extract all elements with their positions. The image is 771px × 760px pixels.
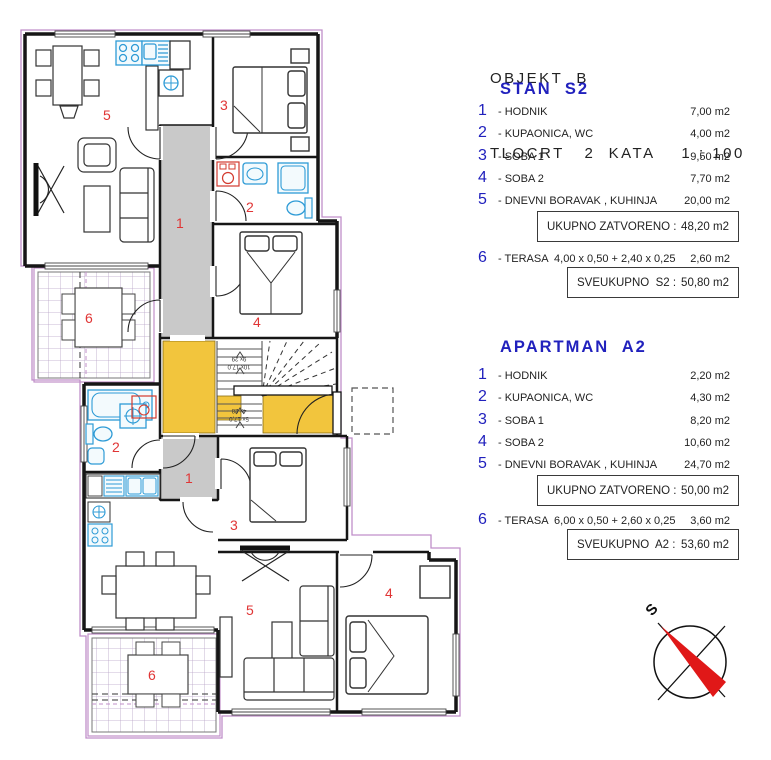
room-name: - SOBA 1	[498, 415, 544, 427]
subtotal-box-a2: UKUPNO ZATVORENO : 50,00 m2	[537, 475, 739, 506]
room-number: 5	[470, 455, 495, 473]
room-area: 8,20 m2	[690, 415, 730, 427]
room-name: - SOBA 2	[498, 437, 544, 449]
room-area: 2,60 m2	[690, 253, 730, 265]
room-number: 4	[470, 169, 495, 187]
room-number: 2	[470, 388, 495, 406]
room-name: - HODNIK	[498, 370, 548, 382]
area-rows-a2: 1 - HODNIK 2,20 m2 2 - KUPAONICA, WC 4,3…	[470, 366, 771, 477]
corridor-fill	[160, 125, 218, 500]
room-name: - TERASA 6,00 x 0,50 + 2,60 x 0,25	[498, 515, 675, 527]
room-name: - KUPAONICA, WC	[498, 392, 593, 404]
subtotal-value: 50,00 m2	[681, 485, 729, 497]
room-number: 3	[470, 411, 495, 429]
total-value: 50,80 m2	[681, 277, 729, 289]
area-rows-s2: 1 - HODNIK 7,00 m2 2 - KUPAONICA, WC 4,0…	[470, 102, 771, 213]
a2-bath-fixtures	[86, 390, 156, 464]
terrace-row-a2: 6 - TERASA 6,00 x 0,50 + 2,60 x 0,25 3,6…	[470, 511, 771, 529]
room-number: 2	[470, 124, 495, 142]
room-area: 3,60 m2	[690, 515, 730, 527]
room-label-a2-living: 5	[246, 602, 254, 618]
room-label-a2-bath: 2	[112, 439, 120, 455]
subtotal-label: UKUPNO ZATVORENO :	[547, 221, 677, 233]
area-row: 4 - SOBA 2 10,60 m2	[470, 433, 771, 455]
subtotal-box-s2: UKUPNO ZATVORENO : 48,20 m2	[537, 211, 739, 242]
svg-text:5x 17,0: 5x 17,0	[228, 415, 248, 421]
room-label-a2-hall: 1	[185, 470, 193, 486]
s2-bed-soba2	[240, 232, 302, 314]
terrace-row-s2: 6 - TERASA 4,00 x 0,50 + 2,40 x 0,25 2,6…	[470, 249, 771, 267]
total-box-s2: SVEUKUPNO S2 : 50,80 m2	[567, 267, 739, 298]
room-label-s2-bath: 2	[246, 199, 254, 215]
section-title-s2: STAN S2	[500, 80, 589, 99]
room-number: 4	[470, 433, 495, 451]
subtotal-label: UKUPNO ZATVORENO :	[547, 485, 677, 497]
room-name: - SOBA 1	[498, 151, 544, 163]
area-row: 2 - KUPAONICA, WC 4,00 m2	[470, 124, 771, 146]
area-row: 4 - SOBA 2 7,70 m2	[470, 169, 771, 191]
area-row: 3 - SOBA 1 9,50 m2	[470, 147, 771, 169]
area-row: 2 - KUPAONICA, WC 4,30 m2	[470, 388, 771, 410]
terrace-s2	[34, 268, 154, 382]
room-number: 5	[470, 191, 495, 209]
room-area: 4,00 m2	[690, 128, 730, 140]
room-name: - SOBA 2	[498, 173, 544, 185]
room-name: - DNEVNI BORAVAK , KUHINJA	[498, 459, 657, 471]
room-label-s2-soba1: 3	[220, 97, 228, 113]
total-value: 53,60 m2	[681, 539, 729, 551]
section-title-a2: APARTMAN A2	[500, 338, 647, 357]
s2-bath-fixtures	[217, 162, 312, 218]
room-number: 6	[470, 249, 495, 267]
room-name: - TERASA 4,00 x 0,50 + 2,40 x 0,25	[498, 253, 675, 265]
total-box-a2: SVEUKUPNO A2 : 53,60 m2	[567, 529, 739, 560]
room-label-a2-soba2: 4	[385, 585, 393, 601]
svg-text:4x 28: 4x 28	[231, 407, 246, 413]
floor-plan-sheet: 10x 17,0 9x 29 5x 17,0 4x 28	[0, 0, 771, 760]
room-label-a2-terrace: 6	[148, 667, 156, 683]
room-area: 2,20 m2	[690, 370, 730, 382]
room-name: - DNEVNI BORAVAK , KUHINJA	[498, 195, 657, 207]
room-name: - KUPAONICA, WC	[498, 128, 593, 140]
room-label-s2-terrace: 6	[85, 310, 93, 326]
a2-bed-soba2	[346, 566, 450, 694]
svg-text:9x 29: 9x 29	[231, 355, 246, 361]
room-area: 7,70 m2	[690, 173, 730, 185]
fireplace-s2-icon	[36, 163, 64, 216]
room-area: 24,70 m2	[684, 459, 730, 471]
room-area: 20,00 m2	[684, 195, 730, 207]
room-area: 4,30 m2	[690, 392, 730, 404]
room-number: 1	[470, 366, 495, 384]
room-name: - HODNIK	[498, 106, 548, 118]
area-row: 3 - SOBA 1 8,20 m2	[470, 411, 771, 433]
area-row: 1 - HODNIK 2,20 m2	[470, 366, 771, 388]
room-label-a2-soba1: 3	[230, 517, 238, 533]
room-label-s2-hall: 1	[176, 215, 184, 231]
room-number: 1	[470, 102, 495, 120]
s2-living-furniture	[36, 46, 158, 242]
room-number: 3	[470, 147, 495, 165]
legend-panel: OBJEKT B TLOCRT 2 KATA 1 : 100 STAN S2 1…	[470, 0, 771, 760]
svg-text:10x 17,0: 10x 17,0	[227, 363, 251, 369]
total-label: SVEUKUPNO S2 :	[577, 277, 676, 289]
room-area: 7,00 m2	[690, 106, 730, 118]
room-label-s2-living: 5	[103, 107, 111, 123]
total-label: SVEUKUPNO A2 :	[577, 539, 675, 551]
s2-bed-soba1	[233, 49, 309, 151]
room-number: 6	[470, 511, 495, 529]
room-area: 9,50 m2	[690, 151, 730, 163]
area-row: 1 - HODNIK 7,00 m2	[470, 102, 771, 124]
room-area: 10,60 m2	[684, 437, 730, 449]
terrace-a2	[88, 634, 220, 736]
subtotal-value: 48,20 m2	[681, 221, 729, 233]
a2-kitchen-fixtures	[86, 474, 160, 546]
a2-bed-soba1	[250, 448, 306, 522]
room-label-s2-soba2: 4	[253, 314, 261, 330]
